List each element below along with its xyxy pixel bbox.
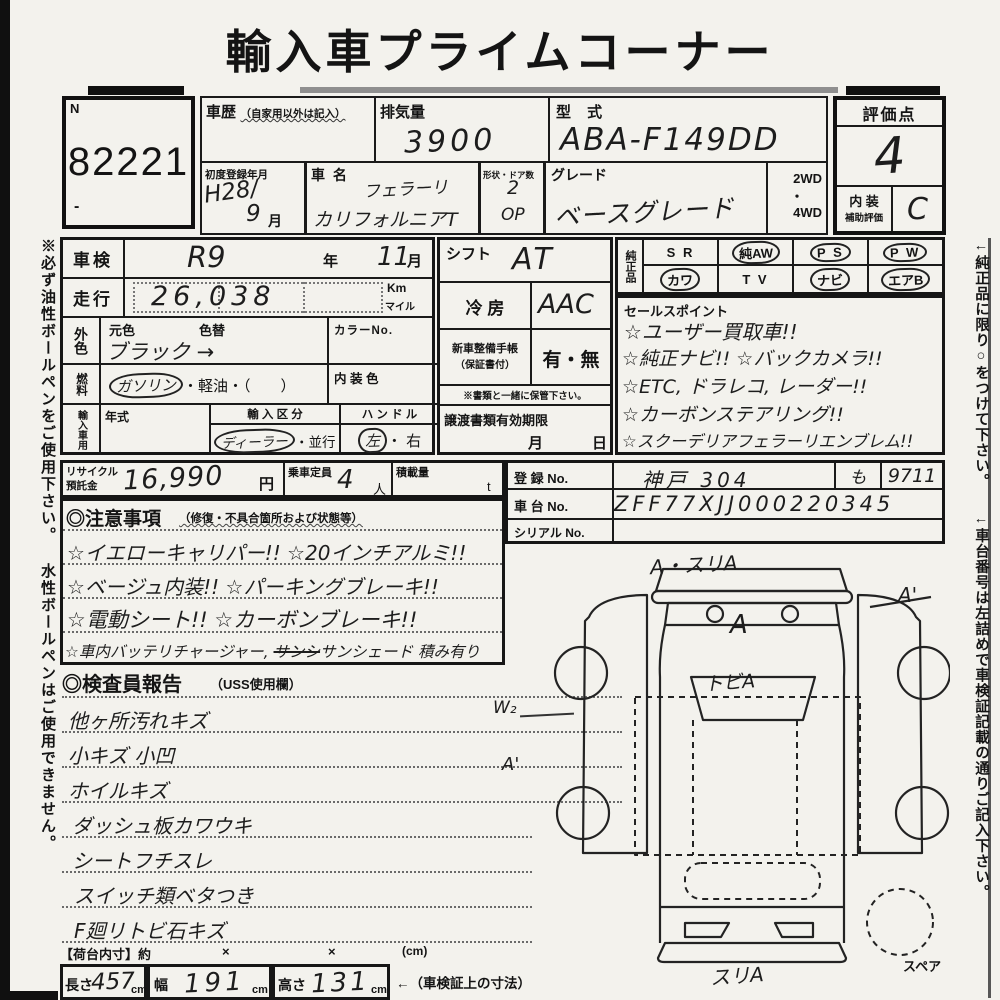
sidebar-left-note: ※必ず油性ボールペンをご使用下さい。 水性ボールペンはご使用できません。 bbox=[12, 238, 58, 993]
import-class-label: 輸 入 区 分 bbox=[211, 405, 339, 425]
record-book-label1: 新車整備手帳 bbox=[440, 340, 530, 356]
top-mark-right bbox=[846, 86, 940, 95]
page-title: 輸入車プライムコーナー bbox=[200, 16, 800, 80]
ext-color-label: 外色 bbox=[63, 318, 101, 365]
displacement-label: 排気量 bbox=[380, 104, 425, 121]
load-unit: t bbox=[487, 479, 491, 494]
serial-no-label: シリアル No. bbox=[508, 520, 614, 541]
drive-cell: 2WD ・ 4WD bbox=[766, 161, 828, 235]
sales-point-line5: ☆スクーデリアフェラーリエンブレム!! bbox=[622, 428, 913, 452]
notes-line4-pre: ☆車内バッテリチャージャー, bbox=[65, 643, 274, 661]
import-class-cell: 輸 入 区 分 ディーラー・並行 bbox=[211, 405, 341, 455]
mileage-value: 26,038 bbox=[151, 281, 275, 312]
score-box: 評価点 4 内 装 補助評価 C bbox=[833, 96, 946, 235]
diagram-label-top: A・スリA bbox=[649, 547, 738, 581]
dims-x2: × bbox=[328, 944, 336, 959]
annotation-w2: W₂ bbox=[493, 698, 517, 718]
genuine-parts-label: 純正品 bbox=[618, 240, 644, 292]
recycle-value: 16,990 bbox=[122, 460, 224, 496]
genuine-aw: 純AW bbox=[719, 240, 794, 266]
diagram-label-hood: A bbox=[730, 610, 748, 640]
top-mark-mid bbox=[300, 87, 838, 93]
height-label: 高さ bbox=[278, 975, 306, 995]
transfer-label: 譲渡書類有効期限 bbox=[444, 410, 548, 429]
import-use-label: 輸入車用 bbox=[63, 405, 101, 455]
height-unit: cm bbox=[371, 984, 387, 996]
genuine-leather: カワ bbox=[644, 266, 719, 292]
score-label: 評価点 bbox=[837, 100, 942, 127]
fuel-label: 燃料 bbox=[63, 365, 101, 405]
lot-n-mark: N bbox=[70, 101, 79, 116]
ac-value: AAC bbox=[538, 289, 594, 320]
history-note: （自家用以外は記入） bbox=[240, 108, 345, 120]
sidebar-right-note2: ←車台番号は左詰めで車検証記載の通りご記入下さい。 bbox=[971, 511, 992, 900]
mileage-box-divider2 bbox=[303, 282, 305, 313]
fuel-options-rest: ・軽油・（ ） bbox=[183, 378, 296, 395]
reg-no-value: 神戸 304 bbox=[614, 463, 836, 490]
notes-line1: ☆イエローキャリパー!! ☆20インチアルミ!! bbox=[63, 531, 502, 565]
headlight-right bbox=[782, 606, 798, 622]
dims-cm: (cm) bbox=[402, 944, 427, 958]
handle-label: ハ ン ド ル bbox=[341, 405, 438, 425]
shift-cell: シフト AT bbox=[440, 240, 610, 283]
inspector-line5: シートフチスレ bbox=[62, 838, 532, 873]
sales-point-line4: ☆カーボンステアリング!! bbox=[622, 400, 844, 427]
fuel-option-gasoline: ガソリン bbox=[109, 372, 184, 400]
softtop-compartment bbox=[685, 863, 820, 899]
shape-doors-value: 2 bbox=[507, 177, 519, 199]
wheel-front-right bbox=[898, 647, 950, 699]
score-value: 4 bbox=[835, 123, 944, 188]
genuine-pw-text: P W bbox=[883, 242, 928, 263]
genuine-navi-text: ナビ bbox=[810, 267, 851, 291]
hood-right-edge bbox=[839, 625, 844, 677]
front-panel bbox=[665, 603, 839, 625]
side-panel-left bbox=[583, 595, 647, 853]
drive-2wd: 2WD bbox=[772, 171, 822, 186]
length-box: 長さ 457 cm bbox=[60, 964, 147, 1000]
height-value: 131 bbox=[310, 966, 370, 999]
genuine-pw: P W bbox=[869, 240, 942, 266]
inspector-line4: ダッシュ板カワウキ bbox=[62, 803, 532, 838]
reg-no-number: 9711 bbox=[882, 463, 942, 490]
reg-no-label: 登 録 No. bbox=[508, 463, 614, 490]
interior-color-cell: 内 装 色 bbox=[329, 365, 438, 405]
shaken-year-suffix: 年 bbox=[323, 250, 338, 271]
record-book-row: 新車整備手帳 （保証書付） 有・無 bbox=[440, 330, 610, 386]
import-class-rest: ・並行 bbox=[295, 435, 336, 450]
spare-label: スペア bbox=[903, 956, 941, 975]
shape-doors-value2: OP bbox=[501, 205, 525, 225]
ac-label: 冷 房 bbox=[440, 283, 532, 330]
interior-score-label-cell: 内 装 補助評価 bbox=[837, 185, 893, 231]
capacity-label: 乗車定員 bbox=[288, 464, 332, 480]
lot-number-box: N 82221 - bbox=[62, 96, 195, 229]
car-name-line1: フェラーリ bbox=[362, 173, 448, 202]
recycle-label1: リサイクル bbox=[66, 464, 118, 479]
interior-score-value: C bbox=[893, 185, 942, 231]
handle-rest: ・ 右 bbox=[387, 433, 421, 450]
lot-dash: - bbox=[74, 198, 79, 216]
record-book-label2: （保証書付） bbox=[440, 356, 530, 371]
scan-edge-left bbox=[0, 0, 10, 1000]
recycle-yen: 円 bbox=[259, 473, 274, 494]
capacity-cell: 乗車定員 4 人 bbox=[285, 463, 393, 495]
sales-points-box: セールスポイント ☆ユーザー買取車!! ☆純正ナビ!! ☆バックカメラ!! ☆E… bbox=[615, 295, 945, 455]
taillight-left bbox=[685, 923, 729, 937]
shaken-month-suffix: 月 bbox=[407, 250, 422, 271]
length-unit: cm bbox=[131, 984, 147, 996]
genuine-ps: P S bbox=[794, 240, 869, 266]
car-name-label: 車 名 bbox=[311, 167, 349, 183]
grade-value: ベースグレード bbox=[553, 188, 735, 233]
model-code-value: ABA-F149DD bbox=[560, 122, 780, 158]
front-bumper-lip bbox=[652, 591, 852, 603]
notes-subtitle: （修復・不具合箇所および状態等） bbox=[179, 510, 363, 526]
genuine-navi: ナビ bbox=[794, 266, 869, 292]
model-code-label: 型 式 bbox=[556, 104, 608, 121]
vehicle-info-table: 車検 R9 年 11 月 走行 26,038 Km マイル 外色 元色 色替 ブ… bbox=[60, 237, 435, 455]
inspector-line7: F廻リトビ石キズ bbox=[62, 908, 532, 943]
drive-4wd: 4WD bbox=[772, 205, 822, 220]
shaken-month-value: 11 bbox=[377, 242, 410, 272]
genuine-airbag: エアB bbox=[869, 266, 942, 292]
handle-cell: ハ ン ド ル 左・ 右 bbox=[341, 405, 438, 455]
car-name-line2: カリフォルニアT bbox=[313, 205, 458, 232]
serial-no-value bbox=[614, 520, 942, 541]
shift-label: シフト bbox=[446, 243, 491, 264]
inspector-line6: スイッチ類ベタつき bbox=[62, 873, 532, 908]
displacement-value: 3900 bbox=[403, 122, 497, 160]
sidebar-right-notes: ←純正品に限り○をつけて下さい。←車台番号は左詰めで車検証記載の通りご記入下さい… bbox=[946, 238, 992, 996]
taillight-right bbox=[775, 923, 813, 937]
sales-point-line2: ☆純正ナビ!! ☆バックカメラ!! bbox=[622, 344, 883, 371]
notes-line4-post: サンシェード 積み有り bbox=[320, 643, 480, 661]
genuine-sr-text: S R bbox=[667, 245, 695, 260]
transfer-day: 日 bbox=[592, 432, 607, 453]
genuine-parts-table: 純正品 S R 純AW P S P W カワ T V ナビ エアB bbox=[615, 237, 945, 295]
model-code-cell: 型 式 ABA-F149DD bbox=[548, 96, 828, 163]
headlight-left bbox=[707, 606, 723, 622]
genuine-leather-text: カワ bbox=[660, 267, 701, 291]
mileage-row: 26,038 Km マイル bbox=[125, 279, 432, 318]
genuine-sr: S R bbox=[644, 240, 719, 266]
mileage-unit-km: Km bbox=[387, 281, 406, 295]
dims-title: 【荷台内寸】約 bbox=[60, 944, 151, 963]
first-reg-month: 9 bbox=[246, 201, 261, 227]
recycle-label2: 預託金 bbox=[66, 478, 98, 493]
mileage-unit-mile: マイル bbox=[385, 298, 415, 313]
shape-doors-cell: 形状・ドア数 2 OP bbox=[479, 161, 545, 235]
interior-score-label2: 補助評価 bbox=[837, 210, 891, 224]
handle-left: 左 bbox=[357, 428, 387, 454]
genuine-airbag-text: エアB bbox=[880, 267, 930, 292]
ac-row: 冷 房 AAC bbox=[440, 283, 610, 330]
reg-no-kana: も bbox=[836, 463, 882, 490]
annotation-a1-left: A' bbox=[502, 754, 519, 775]
interior-color-label: 内 装 色 bbox=[334, 372, 378, 386]
width-unit: cm bbox=[252, 984, 268, 996]
registration-table: 登 録 No. 神戸 304 も 9711 車 台 No. ZFF77XJJ00… bbox=[505, 460, 945, 544]
drivetrain-table: シフト AT 冷 房 AAC 新車整備手帳 （保証書付） 有・無 ※書類と一緒に… bbox=[437, 237, 613, 455]
genuine-ps-text: P S bbox=[810, 242, 851, 262]
genuine-aw-text: 純AW bbox=[731, 240, 780, 265]
grade-cell: グレード ベースグレード bbox=[544, 161, 768, 235]
dims-x1: × bbox=[222, 944, 230, 959]
diagram-label-bottom: スリA bbox=[709, 958, 765, 991]
width-label: 幅 bbox=[154, 975, 168, 995]
notes-line3: ☆電動シート!! ☆カーボンブレーキ!! bbox=[63, 599, 502, 633]
sales-point-line1: ☆ユーザー買取車!! bbox=[624, 316, 798, 345]
genuine-tv: T V bbox=[719, 266, 794, 292]
notes-line4-struck: サンシ bbox=[274, 643, 321, 661]
transfer-month: 月 bbox=[528, 432, 543, 453]
history-label: 車歴 bbox=[206, 104, 236, 121]
capacity-value: 4 bbox=[337, 465, 354, 495]
transfer-cell: 譲渡書類有効期限 月 日 bbox=[440, 406, 610, 452]
shift-value: AT bbox=[512, 242, 555, 277]
ext-color-cell: 元色 色替 ブラック → bbox=[101, 318, 329, 365]
notes-title: ◎注意事項 bbox=[66, 504, 161, 531]
capacity-unit: 人 bbox=[373, 479, 386, 498]
record-book-label-cell: 新車整備手帳 （保証書付） bbox=[440, 330, 532, 386]
drive-dot: ・ bbox=[772, 186, 822, 205]
lot-number: 82221 bbox=[66, 140, 191, 185]
model-year-label: 年式 bbox=[105, 410, 129, 424]
dims-note: ←（車検証上の寸法） bbox=[396, 972, 531, 992]
genuine-tv-text: T V bbox=[742, 272, 768, 287]
fuel-cell: ガソリン・軽油・（ ） bbox=[101, 365, 329, 405]
wheel-front-left bbox=[555, 647, 607, 699]
color-no-label: カラーNo. bbox=[334, 325, 393, 337]
diagram-label-right-a1: A' bbox=[898, 583, 917, 607]
grade-label: グレード bbox=[551, 167, 607, 183]
shaken-label: 車検 bbox=[63, 240, 125, 279]
model-year-cell: 年式 bbox=[101, 405, 211, 455]
load-label: 積載量 bbox=[396, 464, 429, 480]
sidebar-right-note1: ←純正品に限り○をつけて下さい。 bbox=[973, 238, 989, 489]
first-reg-month-suffix: 月 bbox=[268, 211, 282, 231]
dims-header-row: 【荷台内寸】約 × × (cm) bbox=[60, 944, 540, 964]
record-book-value: 有・無 bbox=[532, 330, 610, 386]
height-box: 高さ 131 cm bbox=[272, 964, 390, 1000]
notes-title-row: ◎注意事項 （修復・不具合箇所および状態等） bbox=[63, 501, 502, 531]
car-name-cell: 車 名 フェラーリ カリフォルニアT bbox=[305, 161, 480, 235]
base-color-value: ブラック → bbox=[106, 336, 214, 366]
top-mark-left bbox=[88, 86, 184, 95]
color-no-cell: カラーNo. bbox=[329, 318, 438, 365]
spare-tire-circle bbox=[867, 889, 933, 955]
mileage-label: 走行 bbox=[63, 279, 125, 318]
notes-line2: ☆ベージュ内装!! ☆パーキングブレーキ!! bbox=[63, 565, 502, 599]
width-value: 191 bbox=[183, 966, 246, 999]
width-box: 幅 191 cm bbox=[147, 964, 272, 1000]
chassis-no-label: 車 台 No. bbox=[508, 490, 614, 520]
import-class-dealer: ディーラー bbox=[214, 428, 295, 455]
side-panel-right bbox=[858, 595, 922, 853]
hood-left-edge bbox=[660, 625, 665, 677]
length-value: 457 bbox=[91, 968, 136, 996]
shaken-row: R9 年 11 月 bbox=[125, 240, 432, 279]
interior-score-label1: 内 装 bbox=[837, 191, 891, 210]
displacement-cell: 排気量 3900 bbox=[374, 96, 550, 163]
notes-box: ◎注意事項 （修復・不具合箇所および状態等） ☆イエローキャリパー!! ☆20イ… bbox=[60, 498, 505, 665]
notes-line4: ☆車内バッテリチャージャー, サンシサンシェード 積み有り bbox=[63, 633, 502, 662]
recycle-cell: リサイクル 預託金 16,990 円 bbox=[63, 463, 285, 495]
shaken-era-value: R9 bbox=[187, 240, 226, 274]
keep-note: ※書類と一緒に保管下さい。 bbox=[440, 386, 610, 406]
load-cell: 積載量 t bbox=[393, 463, 502, 495]
auction-sheet: 輸入車プライムコーナー N 82221 - 車歴 （自家用以外は記入） 排気量 … bbox=[0, 0, 1000, 1000]
first-reg-cell: 初度登録年月 H28/ 9 月 bbox=[200, 161, 306, 235]
diagram-label-windshield: トビA bbox=[703, 666, 756, 696]
history-cell: 車歴 （自家用以外は記入） bbox=[200, 96, 376, 163]
length-label: 長さ bbox=[65, 975, 93, 995]
sales-point-line3: ☆ETC, ドラレコ, レーダー!! bbox=[622, 372, 867, 399]
recycle-table: リサイクル 預託金 16,990 円 乗車定員 4 人 積載量 t bbox=[60, 460, 505, 498]
chassis-no-value: ZFF77XJJ000220345 bbox=[614, 490, 942, 520]
